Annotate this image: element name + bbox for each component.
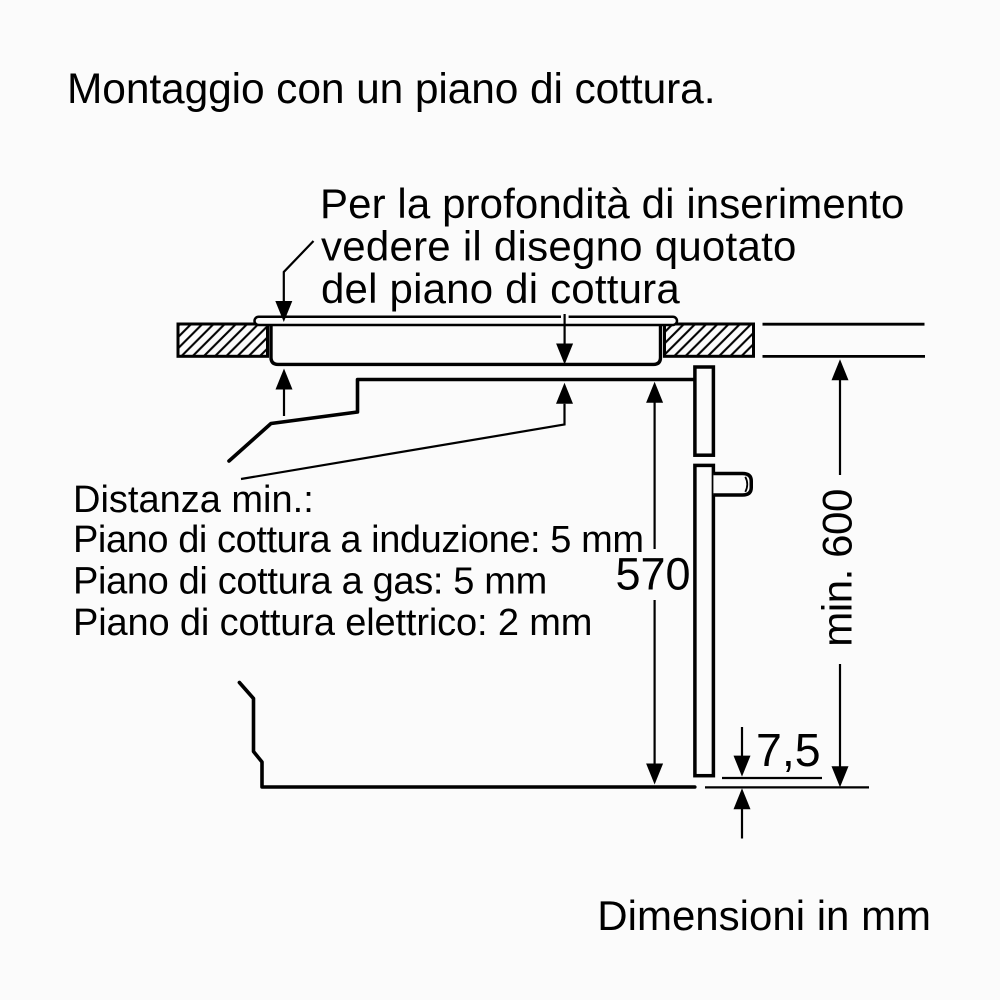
svg-text:Distanza min.:: Distanza min.: xyxy=(73,479,314,521)
svg-text:Piano di cottura a gas: 5 mm: Piano di cottura a gas: 5 mm xyxy=(73,561,547,603)
svg-text:570: 570 xyxy=(615,549,690,600)
svg-text:del piano di cottura: del piano di cottura xyxy=(321,265,680,312)
svg-text:Per la profondità di inserimen: Per la profondità di inserimento xyxy=(320,180,905,227)
svg-text:Dimensioni in mm: Dimensioni in mm xyxy=(597,892,931,939)
svg-text:Montaggio con un piano di cott: Montaggio con un piano di cottura. xyxy=(67,66,716,113)
svg-text:7,5: 7,5 xyxy=(756,724,821,776)
svg-text:vedere il disegno quotato: vedere il disegno quotato xyxy=(321,223,797,270)
svg-text:Piano di cottura a induzione:: Piano di cottura a induzione: 5 mm xyxy=(73,519,644,561)
svg-text:Piano di cottura elettrico: 2: Piano di cottura elettrico: 2 mm xyxy=(73,602,592,644)
svg-text:min. 600: min. 600 xyxy=(814,489,861,647)
